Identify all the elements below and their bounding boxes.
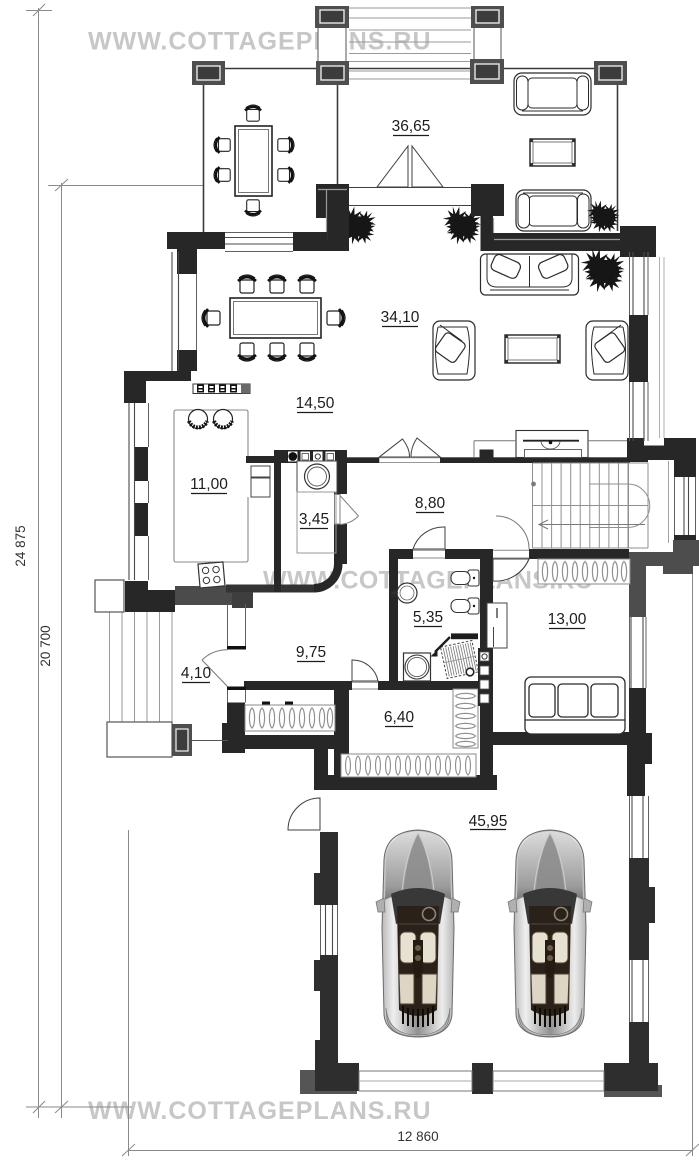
svg-text:3,45: 3,45 <box>299 511 329 528</box>
svg-text:WWW.COTTAGEPLANS.RU: WWW.COTTAGEPLANS.RU <box>88 1097 432 1125</box>
svg-text:24 875: 24 875 <box>13 525 28 566</box>
svg-text:5,35: 5,35 <box>413 609 443 626</box>
svg-text:36,65: 36,65 <box>392 118 431 135</box>
svg-text:14,50: 14,50 <box>296 395 335 412</box>
svg-text:8,80: 8,80 <box>415 495 446 512</box>
svg-text:9,75: 9,75 <box>296 644 326 661</box>
svg-text:6,40: 6,40 <box>384 709 415 726</box>
svg-text:20 700: 20 700 <box>38 625 53 666</box>
svg-text:13,00: 13,00 <box>548 611 587 628</box>
svg-text:4,10: 4,10 <box>181 665 212 682</box>
svg-text:34,10: 34,10 <box>381 309 420 326</box>
svg-text:11,00: 11,00 <box>190 476 228 493</box>
svg-text:12 860: 12 860 <box>397 1129 438 1144</box>
svg-text:45,95: 45,95 <box>469 813 508 830</box>
